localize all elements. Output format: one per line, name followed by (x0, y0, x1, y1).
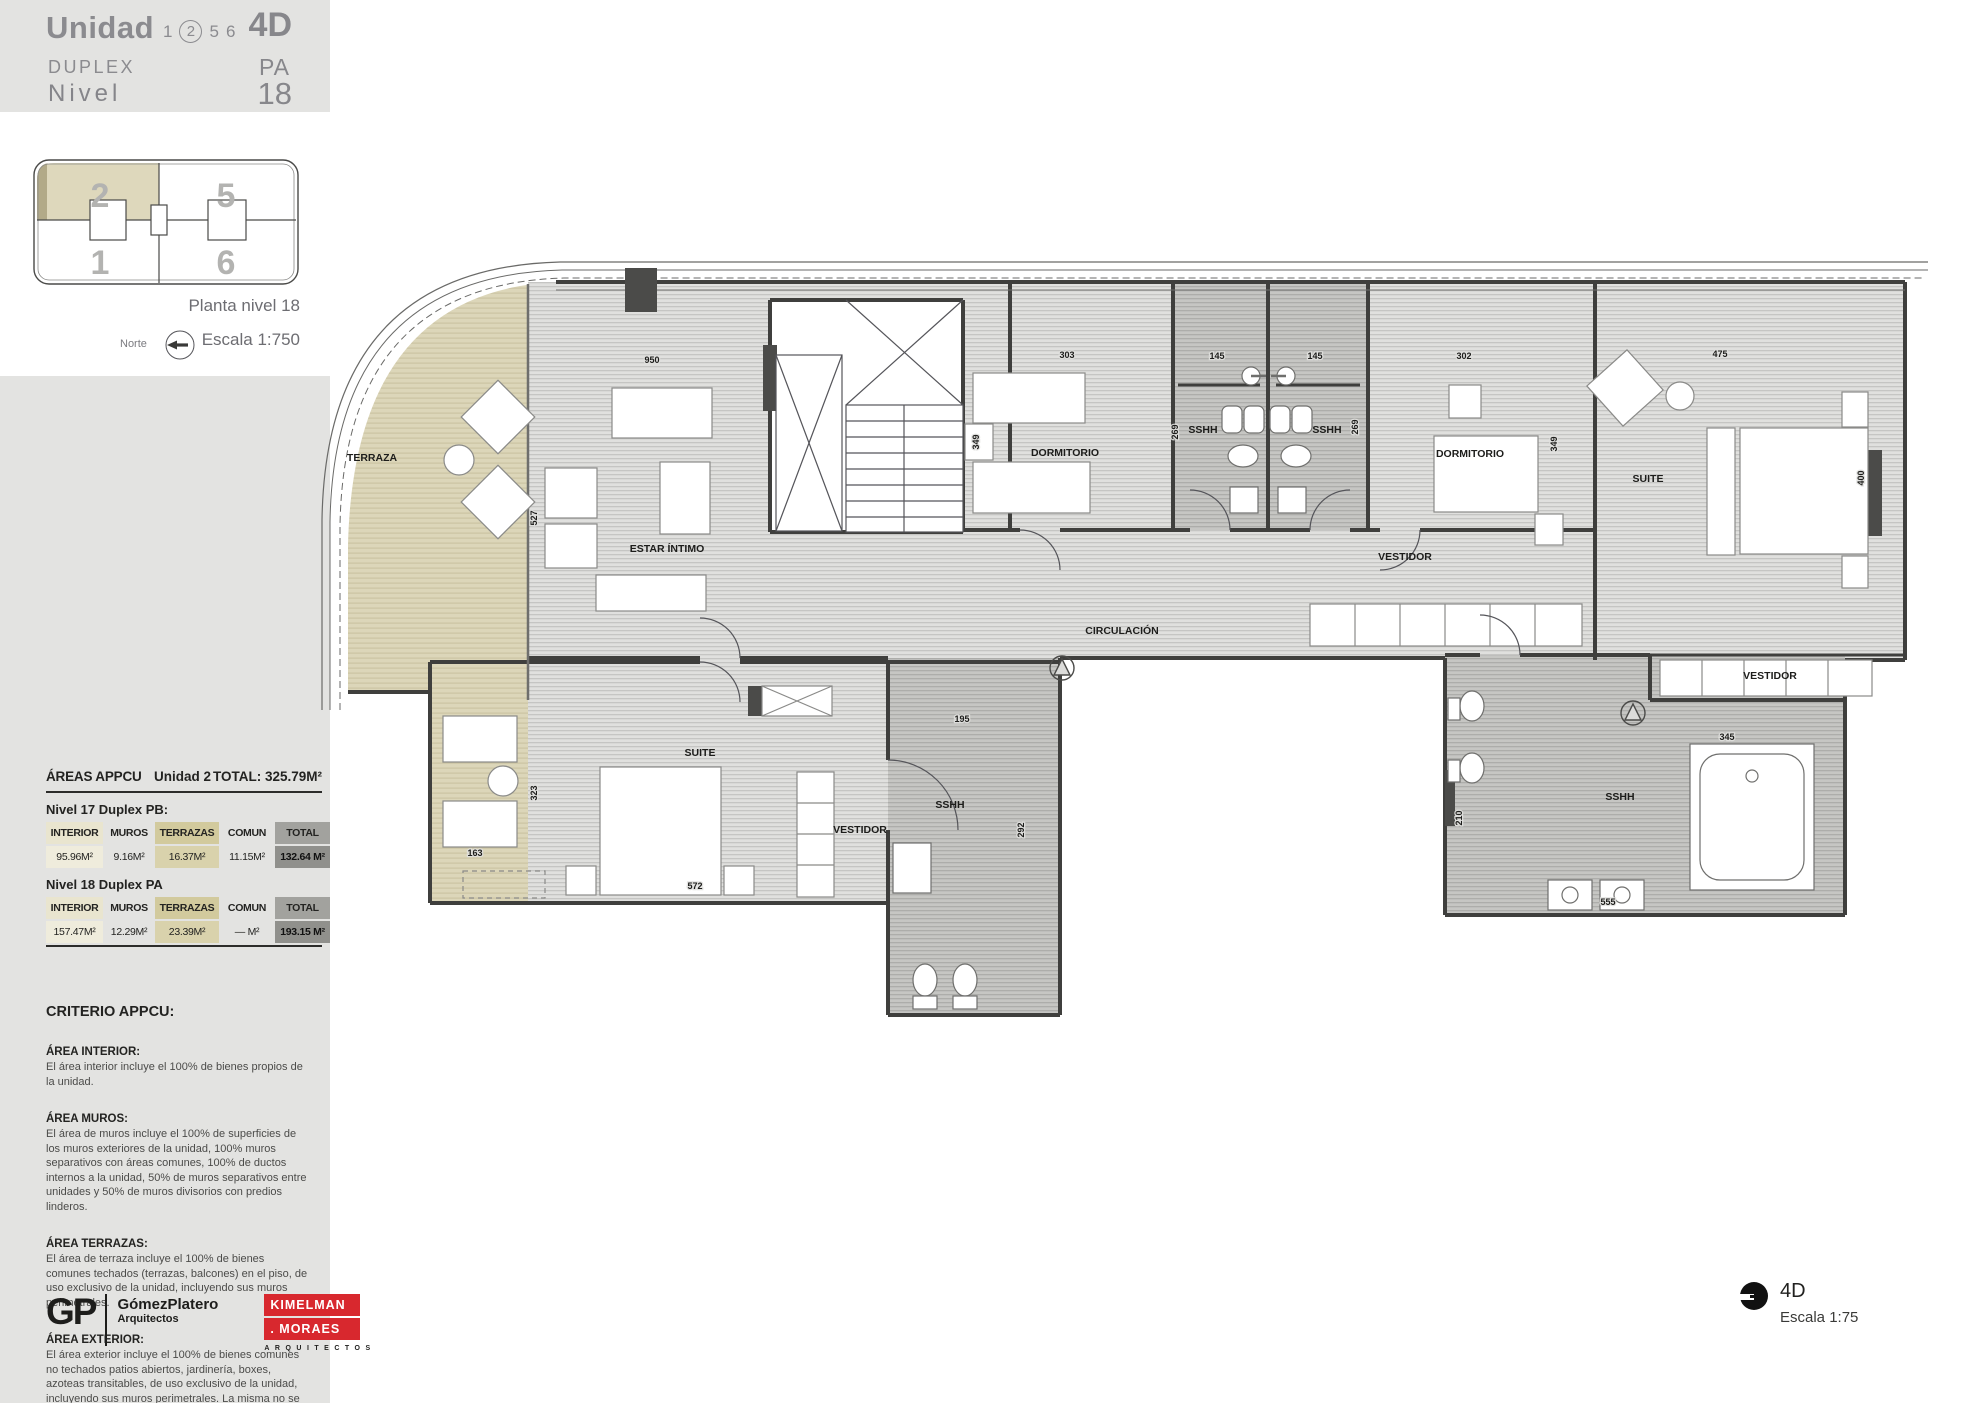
vanity (1278, 487, 1306, 513)
bed-double (600, 767, 721, 895)
toilet (1460, 691, 1484, 721)
toilet-tank (953, 996, 977, 1009)
value-comun: 11.15M² (221, 846, 273, 868)
value-muros: 12.29M² (105, 921, 153, 943)
kimelman-moraes-logo: KIMELMAN . MORAES ARQUITECTOS (264, 1294, 360, 1352)
toilet-tank (1448, 760, 1460, 782)
kimelman-bar: KIMELMAN (264, 1294, 360, 1316)
sheet-header: Unidad 1 2 5 6 4D DUPLEX Nivel PA 18 (0, 0, 330, 112)
value-interior: 157.47M² (46, 921, 103, 943)
sink (1222, 406, 1242, 433)
dimension-label: 400 (1856, 470, 1866, 485)
key-plan-unit-6: 6 (217, 244, 236, 282)
legend-unit-code: 4D (1780, 1280, 1858, 1303)
gomezplatero-name: GómezPlatero (117, 1297, 218, 1313)
dimension-label: 210 (1454, 810, 1464, 825)
value-terrazas: 16.37M² (155, 846, 219, 868)
unit-number-selected: 2 (179, 20, 202, 43)
kimelman-sub: ARQUITECTOS (264, 1345, 360, 1352)
areas-subtitle: Unidad 2 (154, 769, 211, 784)
moraes-bar: . MORAES (264, 1318, 360, 1340)
firm-logos: GP GómezPlatero Arquitectos KIMELMAN . M… (46, 1294, 360, 1352)
unit-number: 1 (163, 22, 172, 42)
key-plan-core (151, 205, 167, 235)
sofa (596, 575, 706, 611)
room-label: VESTIDOR (833, 824, 887, 836)
room-label: TERRAZA (347, 452, 398, 464)
toilet (1281, 445, 1311, 467)
criterio-title: CRITERIO APPCU: (46, 1004, 308, 1020)
room-label: SSHH (1312, 424, 1341, 436)
dimension-label: 303 (1059, 350, 1074, 360)
level-17-table: INTERIOR MUROS TERRAZAS COMUN TOTAL 95.9… (46, 822, 322, 868)
nightstand (1842, 392, 1868, 427)
room-label: CIRCULACIÓN (1085, 624, 1159, 637)
vanity (893, 843, 931, 893)
bed-single (973, 462, 1090, 513)
bathtub (1690, 744, 1814, 890)
gomezplatero-sub: Arquitectos (117, 1313, 218, 1325)
room-label: SSHH (935, 799, 964, 811)
toilet (1228, 445, 1258, 467)
room-label: SSHH (1605, 791, 1634, 803)
sheet-legend: 4D Escala 1:75 (1738, 1280, 1858, 1326)
level-number: 18 (258, 76, 292, 112)
dimension-label: 349 (971, 434, 981, 449)
dimension-label: 349 (1549, 436, 1559, 451)
dimension-label: 195 (954, 714, 969, 724)
level-label: Nivel (48, 80, 121, 108)
plan-title: Planta nivel 18 (0, 296, 300, 316)
sink (1292, 406, 1312, 433)
dimension-label: 527 (529, 510, 539, 525)
bed-single (973, 373, 1085, 423)
unit-number: 6 (226, 22, 235, 42)
floor-plan-sheet: Unidad 1 2 5 6 4D DUPLEX Nivel PA 18 2 5… (0, 0, 1984, 1403)
side-table (1666, 382, 1694, 410)
room-label: DORMITORIO (1436, 448, 1504, 460)
vanity (1230, 487, 1258, 513)
level-18-table: INTERIOR MUROS TERRAZAS COMUN TOTAL 157.… (46, 897, 322, 943)
unit-position-icon (1738, 1280, 1770, 1312)
key-plan-unit-5: 5 (217, 177, 236, 215)
level-18-title: Nivel 18 Duplex PA (46, 877, 322, 892)
key-plan: 2 5 1 6 (28, 156, 304, 288)
table-rule (46, 945, 322, 947)
gomezplatero-logo: GP (46, 1294, 95, 1330)
dimension-label: 555 (1600, 897, 1615, 907)
bidet (1460, 753, 1484, 783)
nightstand (1535, 514, 1563, 545)
col-header-muros: MUROS (105, 822, 153, 844)
unit-number: 5 (209, 22, 218, 42)
room-label: ESTAR ÍNTIMO (630, 542, 704, 555)
logo-divider (105, 1294, 107, 1346)
section-body: El área de muros incluye el 100% de supe… (46, 1127, 308, 1214)
ottoman (1449, 385, 1481, 418)
section-title: ÁREA MUROS: (46, 1113, 308, 1125)
terrace-table (444, 445, 474, 475)
dimension-label: 475 (1712, 349, 1727, 359)
nightstand (566, 866, 596, 895)
coffee-table (545, 524, 597, 568)
unit-type-label: DUPLEX (48, 57, 135, 78)
col-header-comun: COMUN (221, 897, 273, 919)
dimension-label: 302 (1456, 351, 1471, 361)
wardrobe-row (1310, 604, 1582, 646)
plan-scale: Escala 1:750 (0, 330, 300, 350)
value-interior: 95.96M² (46, 846, 103, 868)
areas-header: ÁREAS APPCU Unidad 2 TOTAL: 325.79M² (46, 768, 322, 793)
coffee-table (545, 468, 597, 518)
room-label: VESTIDOR (1378, 551, 1432, 563)
dimension-label: 145 (1307, 351, 1322, 361)
section-body: El área interior incluye el 100% de bien… (46, 1060, 308, 1089)
terrace-table (488, 766, 518, 796)
toilet (913, 964, 937, 996)
room-label: SUITE (1633, 473, 1664, 485)
floor-plan-drawing: TERRAZAESTAR ÍNTIMODORMITORIOSSHHSSHHDOR… (300, 230, 1960, 1150)
sofa (612, 388, 712, 438)
toilet-tank (1448, 698, 1460, 720)
criterio-area-muros: ÁREA MUROS: El área de muros incluye el … (46, 1113, 308, 1214)
col-header-comun: COMUN (221, 822, 273, 844)
level-17-title: Nivel 17 Duplex PB: (46, 802, 322, 817)
bidet (953, 964, 977, 996)
headboard (1707, 428, 1735, 555)
unit-code: 4D (249, 6, 292, 45)
room-label: VESTIDOR (1743, 670, 1797, 682)
section-body: El área exterior incluye el 100% de bien… (46, 1348, 308, 1403)
unit-title: Unidad (46, 10, 154, 46)
areas-table: ÁREAS APPCU Unidad 2 TOTAL: 325.79M² Niv… (46, 768, 322, 947)
dimension-label: 292 (1016, 822, 1026, 837)
info-panel: ÁREAS APPCU Unidad 2 TOTAL: 325.79M² Niv… (0, 376, 330, 1403)
key-plan-unit-2: 2 (91, 177, 110, 215)
col-header-terrazas: TERRAZAS (155, 897, 219, 919)
sink (1244, 406, 1264, 433)
areas-title: ÁREAS APPCU (46, 769, 142, 784)
sofa (660, 462, 710, 534)
value-terrazas: 23.39M² (155, 921, 219, 943)
value-muros: 9.16M² (105, 846, 153, 868)
room-label: SUITE (685, 747, 716, 759)
value-comun: — M² (221, 921, 273, 943)
dimension-label: 572 (687, 881, 702, 891)
nightstand (724, 866, 754, 895)
terrace-lounger (443, 716, 517, 762)
section-title: ÁREA INTERIOR: (46, 1046, 308, 1058)
vanity (1548, 880, 1592, 910)
section-title: ÁREA TERRAZAS: (46, 1238, 308, 1250)
col-header-interior: INTERIOR (46, 822, 103, 844)
toilet-tank (913, 996, 937, 1009)
col-header-terrazas: TERRAZAS (155, 822, 219, 844)
dimension-label: 269 (1350, 419, 1360, 434)
key-plan-unit-1: 1 (91, 244, 110, 282)
dimension-label: 145 (1209, 351, 1224, 361)
nightstand (1842, 556, 1868, 588)
lower-bath-floor (888, 658, 1060, 1015)
dimension-label: 163 (467, 848, 482, 858)
dimension-label: 269 (1170, 424, 1180, 439)
col-header-muros: MUROS (105, 897, 153, 919)
dimension-label: 323 (529, 785, 539, 800)
sink (1270, 406, 1290, 433)
dimension-label: 950 (644, 355, 659, 365)
room-label: DORMITORIO (1031, 447, 1099, 459)
criterio-area-interior: ÁREA INTERIOR: El área interior incluye … (46, 1046, 308, 1089)
unit-number-list: 1 2 5 6 (163, 20, 235, 43)
dimension-label: 345 (1719, 732, 1734, 742)
bed-double (1740, 428, 1868, 554)
room-label: SSHH (1188, 424, 1217, 436)
terrace-floor (348, 282, 556, 692)
legend-scale: Escala 1:75 (1780, 1309, 1858, 1326)
col-header-interior: INTERIOR (46, 897, 103, 919)
terrace-lounger (443, 801, 517, 847)
